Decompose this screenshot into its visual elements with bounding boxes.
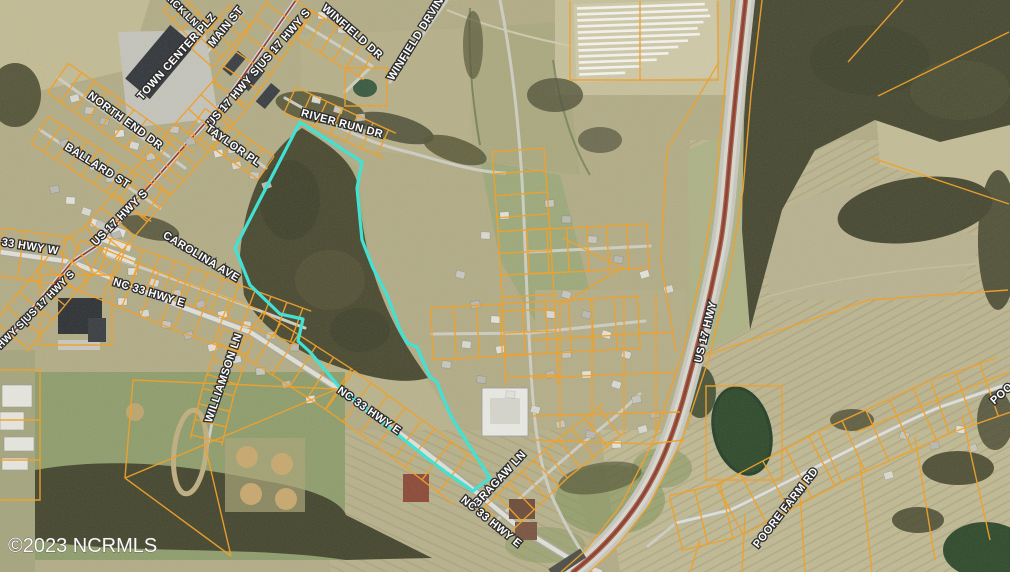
copyright-watermark: ©2023 NCRMLS [8, 535, 157, 557]
satellite-map-canvas[interactable]: RICK LN TOWN CENTER PLZ MAIN ST US 17 HW… [0, 0, 1010, 572]
map-viewport[interactable]: RICK LN TOWN CENTER PLZ MAIN ST US 17 HW… [0, 0, 1010, 572]
